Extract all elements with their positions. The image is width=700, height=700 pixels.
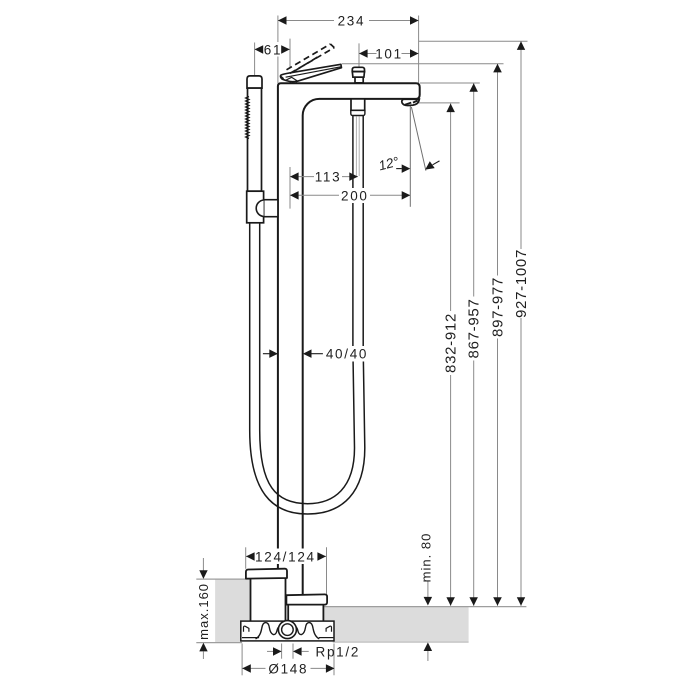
svg-text:124/124: 124/124 [255, 549, 316, 564]
svg-text:max.160: max.160 [196, 583, 211, 640]
svg-text:40/40: 40/40 [326, 347, 368, 362]
svg-text:113: 113 [315, 170, 342, 185]
svg-text:200: 200 [341, 188, 369, 203]
svg-text:101: 101 [375, 47, 403, 62]
svg-text:234: 234 [338, 14, 366, 29]
svg-text:Rp1/2: Rp1/2 [316, 644, 361, 659]
svg-text:832-912: 832-912 [443, 313, 460, 373]
svg-text:61: 61 [264, 42, 282, 57]
svg-text:867-957: 867-957 [466, 299, 483, 359]
svg-text:min. 80: min. 80 [418, 533, 433, 583]
svg-text:927-1007: 927-1007 [513, 249, 530, 318]
svg-text:897-977: 897-977 [489, 277, 506, 337]
svg-text:Ø148: Ø148 [268, 661, 308, 676]
